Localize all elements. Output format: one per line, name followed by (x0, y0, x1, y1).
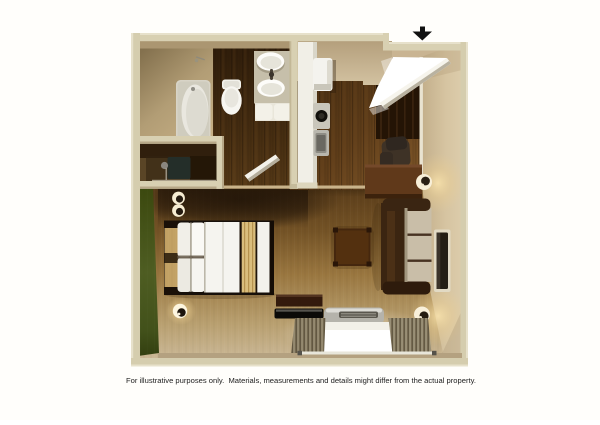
svg-text:For illustrative purposes only: For illustrative purposes only. Material… (126, 376, 476, 385)
